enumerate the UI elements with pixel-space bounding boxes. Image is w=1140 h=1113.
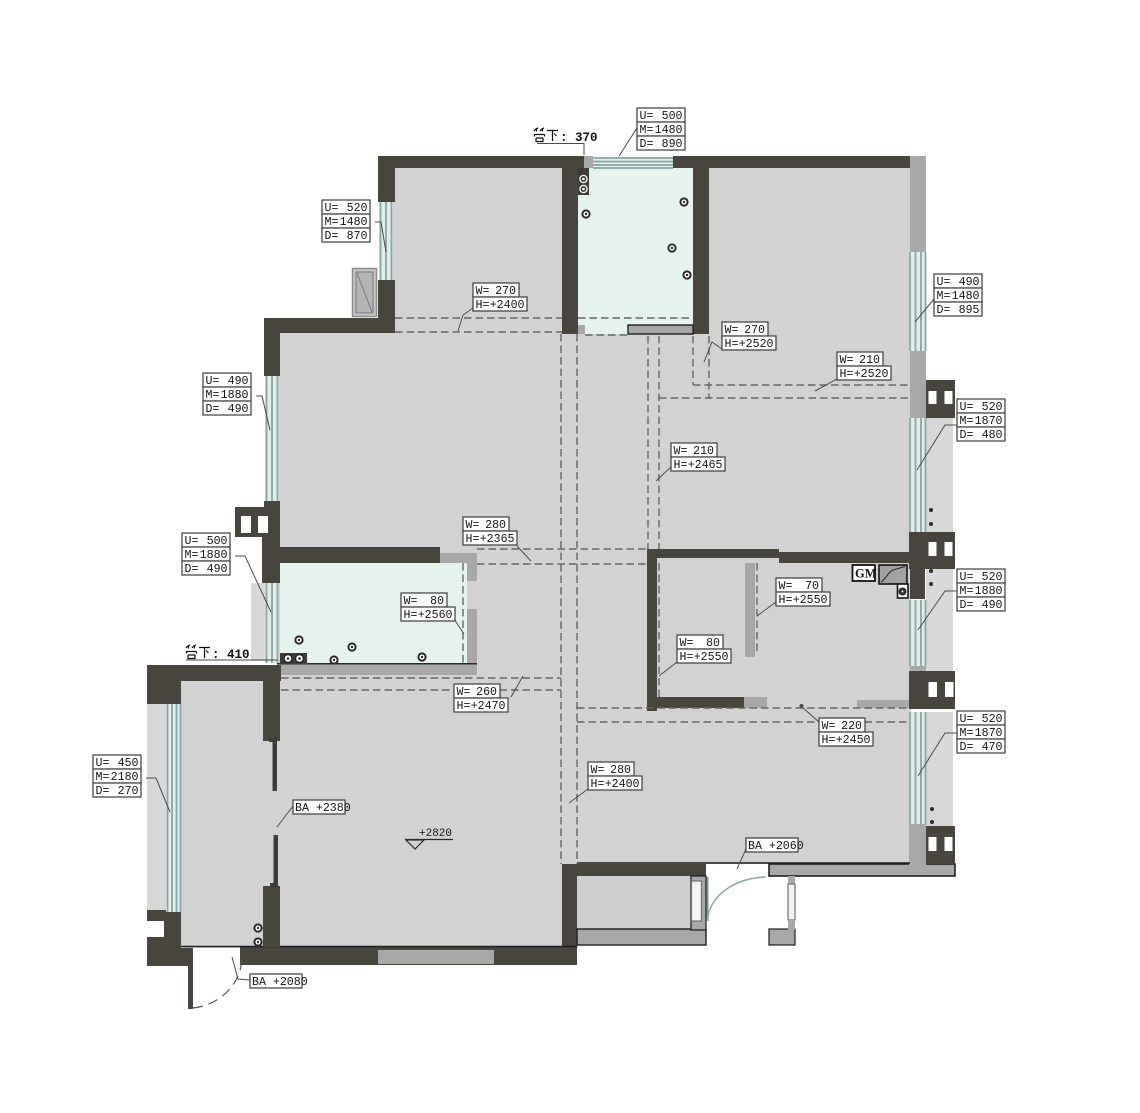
svg-text:80: 80 (706, 637, 720, 650)
svg-text:500: 500 (207, 535, 228, 548)
svg-text:: 410: : 410 (212, 648, 250, 662)
svg-text:+2400: +2400 (605, 778, 640, 791)
svg-text:W=: W= (457, 686, 471, 699)
svg-text:D=: D= (206, 403, 220, 416)
svg-text:M=: M= (960, 727, 974, 740)
svg-text:1880: 1880 (975, 585, 1003, 598)
svg-text:490: 490 (228, 375, 249, 388)
svg-text:450: 450 (118, 757, 139, 770)
svg-text:U=: U= (960, 571, 974, 584)
svg-text:W=: W= (779, 580, 793, 593)
svg-text:W=: W= (680, 637, 694, 650)
svg-text:M=: M= (206, 389, 220, 402)
svg-text:M=: M= (96, 771, 110, 784)
svg-text:H=: H= (457, 700, 471, 713)
svg-text:H=: H= (822, 734, 836, 747)
svg-text:: 370: : 370 (560, 131, 598, 145)
svg-text:H=: H= (674, 459, 688, 472)
svg-text:M=: M= (325, 216, 339, 229)
svg-text:890: 890 (662, 138, 683, 151)
svg-text:M=: M= (640, 124, 654, 137)
svg-text:H=: H= (779, 594, 793, 607)
svg-text:M=: M= (960, 415, 974, 428)
svg-text:1480: 1480 (655, 124, 683, 137)
svg-text:520: 520 (347, 202, 368, 215)
svg-text:H=: H= (466, 533, 480, 546)
svg-text:BA +2060: BA +2060 (748, 840, 804, 853)
svg-text:+2550: +2550 (694, 651, 729, 664)
svg-text:W=: W= (591, 764, 605, 777)
svg-text:U=: U= (960, 713, 974, 726)
svg-text:BA +2080: BA +2080 (252, 976, 308, 989)
svg-text:H=: H= (591, 778, 605, 791)
svg-text:W=: W= (476, 285, 490, 298)
svg-text:80: 80 (430, 595, 444, 608)
svg-text:220: 220 (841, 720, 862, 733)
svg-text:BA +2380: BA +2380 (295, 802, 351, 815)
svg-text:U=: U= (185, 535, 199, 548)
svg-text:W=: W= (725, 324, 739, 337)
svg-text:895: 895 (959, 304, 980, 317)
svg-text:270: 270 (495, 285, 516, 298)
svg-text:+2465: +2465 (688, 459, 723, 472)
svg-text:+2450: +2450 (836, 734, 871, 747)
svg-text:D=: D= (960, 599, 974, 612)
svg-text:H=: H= (680, 651, 694, 664)
svg-text:D=: D= (96, 785, 110, 798)
svg-text:490: 490 (959, 276, 980, 289)
svg-text:D=: D= (960, 741, 974, 754)
svg-text:270: 270 (744, 324, 765, 337)
svg-text:U=: U= (96, 757, 110, 770)
svg-text:W=: W= (404, 595, 418, 608)
svg-text:H=: H= (725, 338, 739, 351)
svg-text:W=: W= (822, 720, 836, 733)
svg-text:490: 490 (982, 599, 1003, 612)
svg-text:H=: H= (840, 368, 854, 381)
svg-text:U=: U= (206, 375, 220, 388)
svg-text:+2520: +2520 (854, 368, 889, 381)
svg-text:U=: U= (325, 202, 339, 215)
svg-text:+2550: +2550 (793, 594, 828, 607)
svg-text:1880: 1880 (200, 549, 228, 562)
svg-text:D=: D= (185, 563, 199, 576)
svg-text:+2365: +2365 (480, 533, 515, 546)
svg-text:D=: D= (937, 304, 951, 317)
svg-text:H=: H= (404, 609, 418, 622)
svg-text:500: 500 (662, 110, 683, 123)
svg-text:470: 470 (982, 741, 1003, 754)
svg-text:1870: 1870 (975, 415, 1003, 428)
svg-text:H=: H= (476, 299, 490, 312)
svg-text:M=: M= (960, 585, 974, 598)
svg-text:+2820: +2820 (419, 828, 452, 840)
svg-text:D=: D= (325, 230, 339, 243)
svg-text:M=: M= (937, 290, 951, 303)
svg-text:1880: 1880 (221, 389, 249, 402)
svg-text:+2400: +2400 (490, 299, 525, 312)
svg-text:+2470: +2470 (471, 700, 506, 713)
svg-text:1870: 1870 (975, 727, 1003, 740)
svg-text:M=: M= (185, 549, 199, 562)
svg-text:D=: D= (640, 138, 654, 151)
svg-text:210: 210 (859, 354, 880, 367)
svg-text:+2520: +2520 (739, 338, 774, 351)
svg-text:W=: W= (674, 445, 688, 458)
svg-text:520: 520 (982, 713, 1003, 726)
svg-text:U=: U= (937, 276, 951, 289)
svg-text:W=: W= (840, 354, 854, 367)
svg-text:U=: U= (640, 110, 654, 123)
svg-text:870: 870 (347, 230, 368, 243)
svg-text:210: 210 (693, 445, 714, 458)
svg-text:D=: D= (960, 429, 974, 442)
svg-text:520: 520 (982, 571, 1003, 584)
svg-text:70: 70 (805, 580, 819, 593)
svg-text:1480: 1480 (340, 216, 368, 229)
svg-text:280: 280 (610, 764, 631, 777)
svg-text:1480: 1480 (952, 290, 980, 303)
svg-text:GM: GM (855, 567, 877, 581)
svg-text:260: 260 (476, 686, 497, 699)
svg-text:2180: 2180 (111, 771, 139, 784)
svg-text:520: 520 (982, 401, 1003, 414)
svg-text:490: 490 (228, 403, 249, 416)
svg-text:W=: W= (466, 519, 480, 532)
svg-text:+2560: +2560 (418, 609, 453, 622)
svg-text:U=: U= (960, 401, 974, 414)
svg-text:270: 270 (118, 785, 139, 798)
svg-text:280: 280 (485, 519, 506, 532)
svg-text:490: 490 (207, 563, 228, 576)
svg-text:480: 480 (982, 429, 1003, 442)
